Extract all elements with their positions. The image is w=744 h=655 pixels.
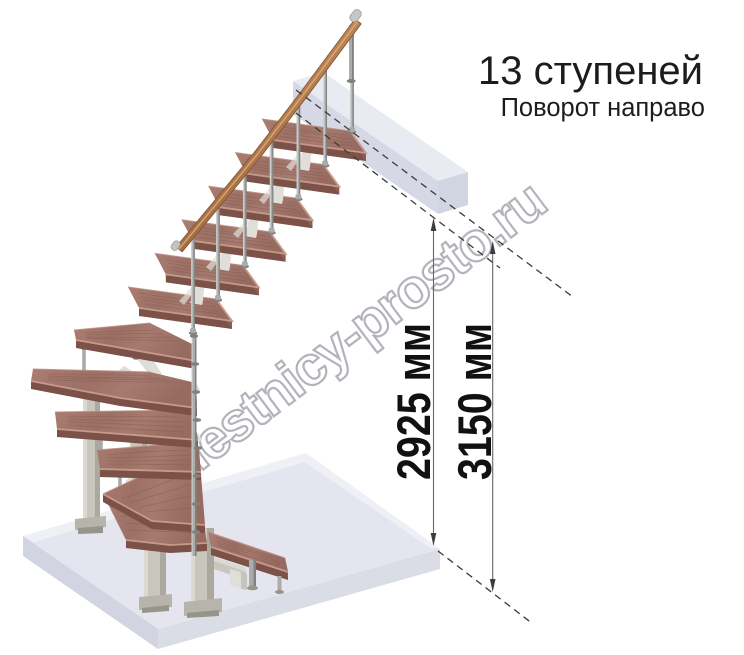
svg-text:13 ступеней: 13 ступеней (478, 49, 703, 93)
svg-text:3150 мм: 3150 мм (448, 323, 501, 480)
svg-text:Поворот направо: Поворот направо (501, 94, 705, 122)
svg-text:2925 мм: 2925 мм (387, 323, 440, 480)
